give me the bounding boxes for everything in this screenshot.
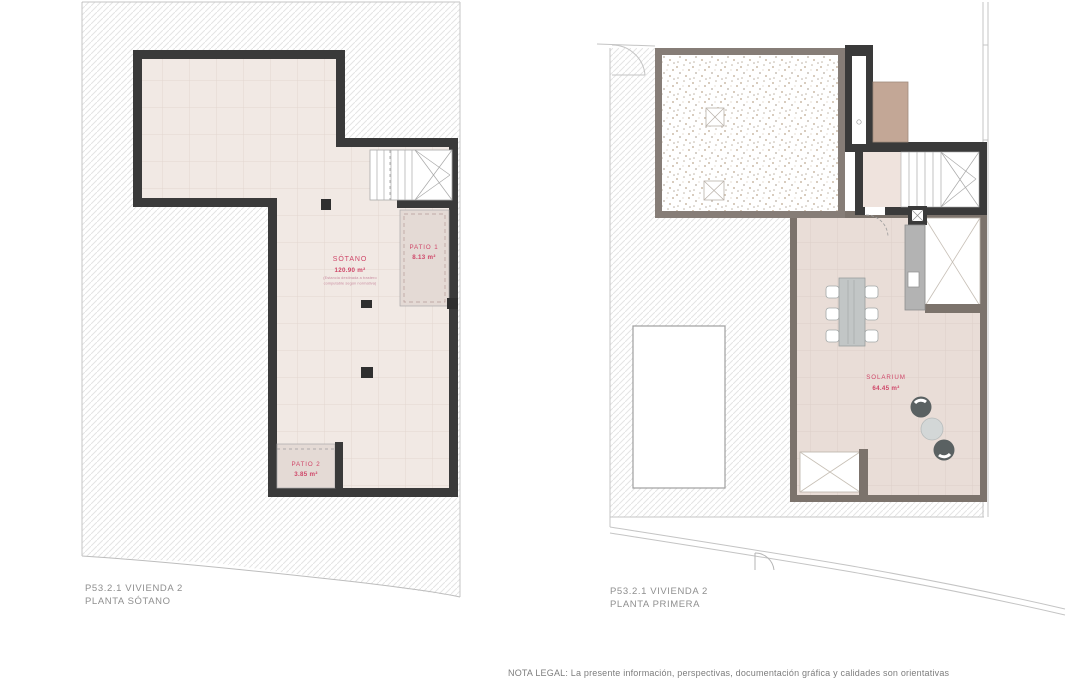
patio1-label: PATIO 1 xyxy=(409,244,438,251)
basement-plan-title: P53.2.1 VIVIENDA 2 PLANTA SÓTANO xyxy=(85,583,183,608)
parcel-top-boundary xyxy=(597,44,655,46)
floorplan-sheet: PATIO 1 8.13 m² PATIO 2 3.85 m² SÓTANO 1… xyxy=(0,0,1070,682)
first-floor-plan-drawing: SOLARIUM 64.45 m² xyxy=(595,0,1070,645)
terrace-skylight-marker-1 xyxy=(706,108,724,126)
plan-level: PLANTA PRIMERA xyxy=(610,599,708,612)
entry-door-arc xyxy=(755,553,774,570)
kitchen-counter xyxy=(905,225,925,310)
void-skylight xyxy=(925,218,987,313)
sotano-area-value: 120.90 m² xyxy=(335,267,366,274)
plan-level: PLANTA SÓTANO xyxy=(85,596,183,609)
sink-icon xyxy=(908,272,919,287)
terrace-skylight-marker-2 xyxy=(704,181,724,200)
sotano-note-line1: (Estancia destinada a trastero xyxy=(323,276,376,280)
floor-skylight xyxy=(800,449,868,495)
chair-icon xyxy=(865,308,878,320)
patio2-area: PATIO 2 3.85 m² xyxy=(277,442,343,488)
basement-stair-icon xyxy=(370,150,452,200)
legal-note: NOTA LEGAL: La presente información, per… xyxy=(508,668,949,678)
pool xyxy=(633,326,725,488)
tan-block xyxy=(873,82,908,142)
side-table-icon xyxy=(921,418,943,440)
sotano-note-line2: computable según normativa) xyxy=(324,282,377,286)
chair-icon xyxy=(826,308,839,320)
basement-plan-drawing: PATIO 1 8.13 m² PATIO 2 3.85 m² SÓTANO 1… xyxy=(55,0,475,618)
plan-code: P53.2.1 VIVIENDA 2 xyxy=(610,586,708,599)
patio1-area-value: 8.13 m² xyxy=(412,254,435,261)
solarium-label: SOLARIUM xyxy=(866,374,906,381)
chair-icon xyxy=(865,330,878,342)
terrace xyxy=(655,48,845,218)
chair-icon xyxy=(865,286,878,298)
chimney-band xyxy=(845,45,873,152)
solarium-area-value: 64.45 m² xyxy=(872,385,899,392)
sotano-label: SÓTANO xyxy=(333,254,367,263)
patio2-label: PATIO 2 xyxy=(291,461,320,468)
plan-code: P53.2.1 VIVIENDA 2 xyxy=(85,583,183,596)
patio2-area-value: 3.85 m² xyxy=(294,471,317,478)
dining-table xyxy=(839,278,865,346)
first-floor-plan-title: P53.2.1 VIVIENDA 2 PLANTA PRIMERA xyxy=(610,586,708,611)
patio1-area: PATIO 1 8.13 m² xyxy=(400,210,449,306)
dining-set xyxy=(826,278,878,346)
shaft-marker xyxy=(908,206,927,225)
chair-icon xyxy=(826,330,839,342)
chair-icon xyxy=(826,286,839,298)
